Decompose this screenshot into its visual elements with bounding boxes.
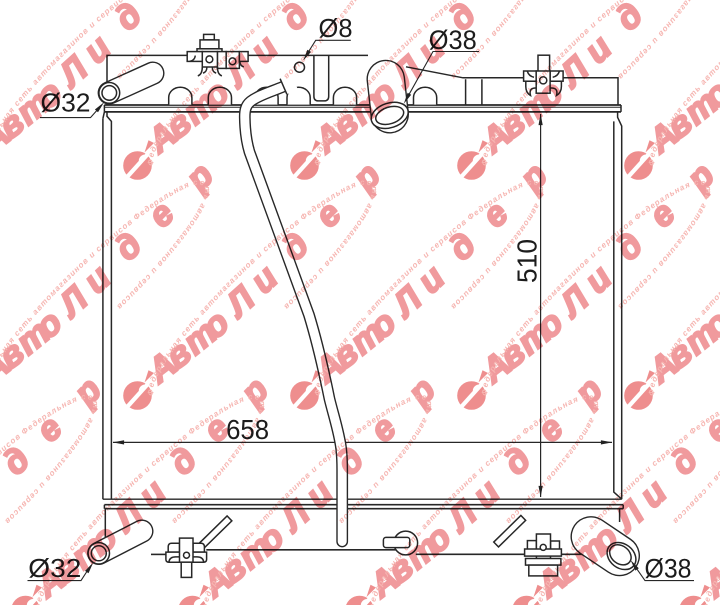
svg-text:510: 510 (512, 239, 543, 283)
svg-text:Ø38: Ø38 (645, 554, 692, 584)
